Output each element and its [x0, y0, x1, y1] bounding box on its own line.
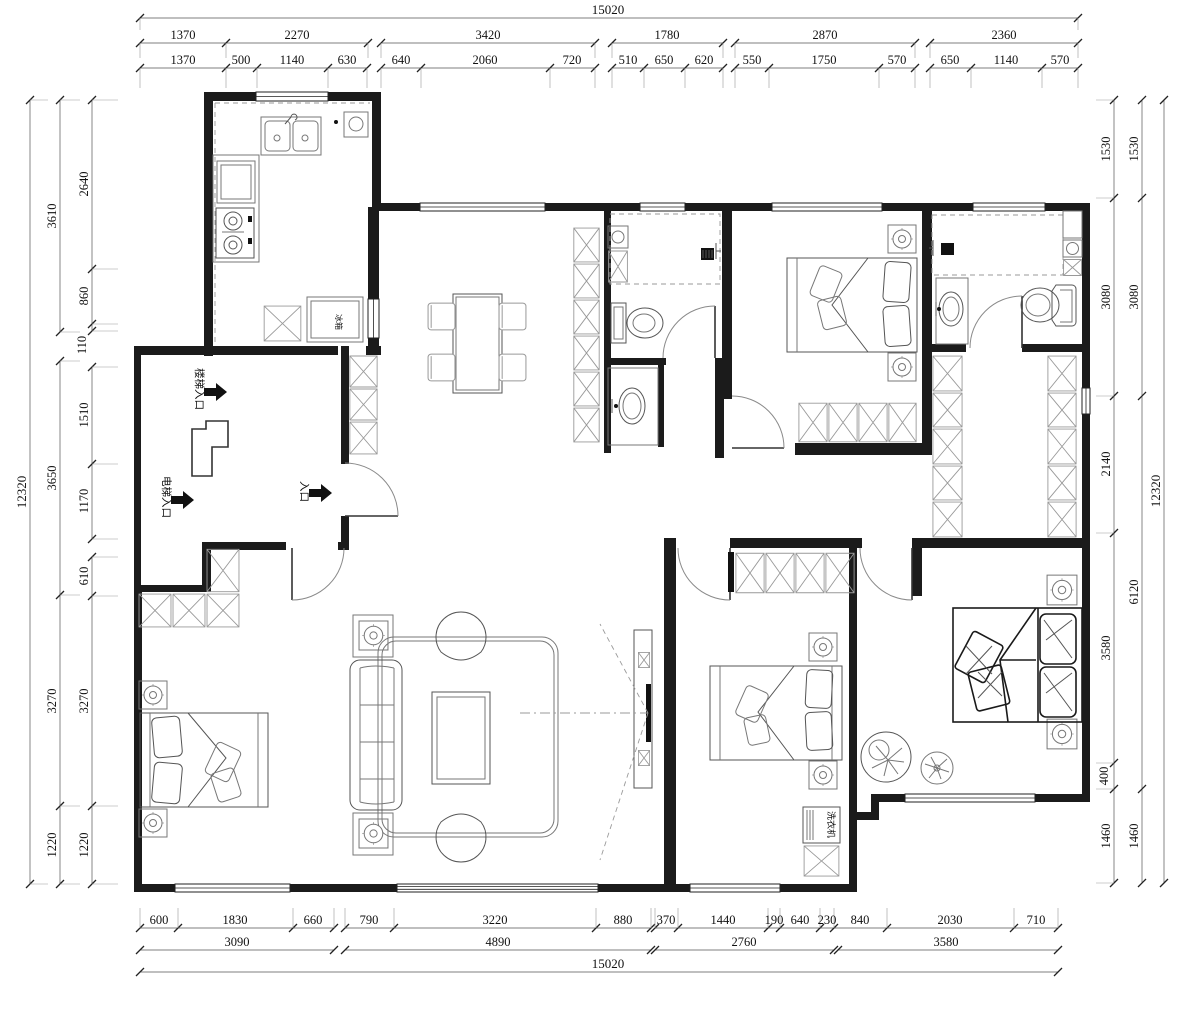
dim: 6120 [1127, 580, 1141, 605]
rug [378, 637, 558, 837]
window [420, 203, 545, 211]
dining-chair [428, 354, 455, 381]
dim-top-total: 15020 [592, 2, 625, 17]
dim: 570 [888, 53, 907, 67]
bed-bold [953, 608, 1082, 722]
tv-view-lines [600, 624, 648, 860]
window [397, 884, 598, 892]
nightstand-lamp [888, 353, 916, 381]
washing-machine: 洗衣机 [803, 807, 840, 843]
dim: 840 [851, 913, 870, 927]
bedroom-middle: 洗衣机 [710, 552, 854, 876]
plant-large [861, 732, 911, 782]
dim: 3080 [1099, 285, 1113, 310]
shower-head-icon [701, 243, 721, 260]
window [640, 203, 685, 211]
dim: 1170 [77, 489, 91, 514]
toilet [1021, 285, 1076, 326]
dim: 2640 [77, 172, 91, 197]
floor-plan-drawing: 15020 1370 2270 3420 1780 2870 2360 1370… [0, 0, 1200, 1014]
dim: 2030 [938, 913, 963, 927]
dim: 1220 [45, 833, 59, 858]
tv-cabinet [634, 630, 652, 788]
dim: 3270 [45, 689, 59, 714]
dim: 570 [1051, 53, 1070, 67]
dim: 650 [941, 53, 960, 67]
bed [787, 258, 917, 352]
dim: 610 [77, 567, 91, 586]
floor-plan-sheet: 15020 1370 2270 3420 1780 2870 2360 1370… [0, 0, 1200, 1014]
sofa [350, 660, 402, 810]
stove [216, 208, 254, 258]
dining-chair [499, 354, 526, 381]
dim: 650 [655, 53, 674, 67]
dim: 1140 [280, 53, 305, 67]
bedroom-top-door [732, 396, 784, 448]
cabinet-x [609, 251, 628, 282]
dim: 860 [77, 287, 91, 306]
dining-area [350, 228, 599, 454]
walls [134, 92, 1090, 892]
dim: 720 [563, 53, 582, 67]
washbasin-niche [608, 368, 658, 445]
nightstand-lamp [809, 761, 837, 789]
dim: 1530 [1127, 137, 1141, 162]
table-lamp [359, 621, 388, 650]
washing-machine-label: 洗衣机 [825, 811, 837, 838]
dim: 1460 [1099, 824, 1113, 849]
refrigerator: 冰箱 [307, 297, 363, 342]
dim: 790 [360, 913, 379, 927]
bed [710, 666, 842, 760]
window [368, 299, 379, 338]
window [256, 92, 328, 101]
dim: 3650 [45, 466, 59, 491]
dim: 3270 [77, 689, 91, 714]
dim: 1460 [1127, 824, 1141, 849]
entry-cabinet [350, 356, 377, 454]
dim: 620 [695, 53, 714, 67]
toilet [611, 303, 663, 343]
dining-chair [499, 303, 526, 330]
dim-bottom-total: 15020 [592, 956, 625, 971]
nightstand-lamp [888, 225, 916, 253]
dim: 3580 [934, 935, 959, 949]
dim: 1440 [711, 913, 736, 927]
bed [140, 713, 268, 807]
elevator-arrow-icon [171, 491, 194, 509]
bathroom2-door [970, 296, 1022, 348]
dim: 660 [304, 913, 323, 927]
bedroom-middle-door [678, 548, 730, 600]
window [772, 203, 882, 211]
dim: 370 [657, 913, 676, 927]
washbasin [936, 278, 968, 344]
entry-door [345, 463, 398, 516]
dim: 2360 [992, 28, 1017, 42]
dim: 640 [791, 913, 810, 927]
armchair [436, 814, 486, 862]
dim: 3420 [476, 28, 501, 42]
hall-cabinet-tall [574, 228, 599, 442]
nightstand-lamp [1047, 719, 1077, 749]
dim: 400 [1097, 767, 1111, 786]
dim: 1220 [77, 833, 91, 858]
dim: 1530 [1099, 137, 1113, 162]
dim: 3220 [483, 913, 508, 927]
wardrobe-east [1048, 356, 1076, 537]
window [973, 203, 1045, 211]
kitchen-cabinet [264, 306, 301, 341]
dining-chair [428, 303, 455, 330]
dim: 1140 [994, 53, 1019, 67]
dim: 3090 [225, 935, 250, 949]
kitchen: 冰箱 [213, 103, 370, 344]
dim: 190 [765, 913, 784, 927]
stair-arrow-icon [204, 383, 227, 401]
dim: 1370 [171, 53, 196, 67]
bathroom-2 [929, 211, 1082, 344]
armchair [436, 612, 486, 660]
bedroom-right [861, 575, 1082, 784]
window [690, 884, 780, 892]
wardrobe-west [933, 356, 962, 537]
entrance-arrow-icon [309, 484, 332, 502]
nightstand-lamp [139, 809, 167, 837]
walkin-closet [933, 356, 1076, 537]
door-jamb [728, 552, 734, 592]
bedroom-top [787, 225, 917, 442]
cabinet-x [1064, 260, 1082, 276]
nightstand-lamp [139, 681, 167, 709]
stair-entrance-label: 楼梯入口 [193, 368, 206, 410]
dim: 600 [150, 913, 169, 927]
bedroom-left-door [292, 548, 344, 600]
cabinet-x [804, 846, 839, 876]
table-lamp [359, 819, 388, 848]
dim: 2270 [285, 28, 310, 42]
dim: 550 [743, 53, 762, 67]
kitchen-sink [261, 114, 321, 155]
dim: 2060 [473, 53, 498, 67]
dim: 1750 [812, 53, 837, 67]
dim: 4890 [486, 935, 511, 949]
dim-right-total: 12320 [1148, 475, 1163, 508]
window [1082, 388, 1090, 414]
living-room [350, 612, 652, 862]
wardrobe [799, 403, 916, 442]
nightstand-lamp [1047, 575, 1077, 605]
dim: 1830 [223, 913, 248, 927]
dim: 880 [614, 913, 633, 927]
dim: 3080 [1127, 285, 1141, 310]
nightstand-lamp [809, 633, 837, 661]
dim: 2760 [732, 935, 757, 949]
water-heater [334, 112, 368, 137]
shower-head-icon [929, 240, 954, 256]
dim: 510 [619, 53, 638, 67]
entry-lobby: 楼梯入口 电梯入口 入口 [160, 368, 332, 518]
dim: 500 [232, 53, 251, 67]
dim: 3610 [45, 204, 59, 229]
dim: 640 [392, 53, 411, 67]
window [175, 884, 290, 892]
entrance-label: 入口 [298, 481, 310, 502]
bedroom-right-door [860, 548, 912, 600]
dim: 630 [338, 53, 357, 67]
dim: 3580 [1099, 636, 1113, 661]
dim: 1510 [77, 403, 91, 428]
cabinet [1063, 211, 1082, 257]
dim: 110 [75, 336, 89, 354]
dim-left-total: 12320 [14, 476, 29, 509]
stair-core [192, 421, 228, 476]
coffee-table [432, 692, 490, 784]
dim: 1780 [655, 28, 680, 42]
wardrobe [736, 553, 854, 592]
dim: 230 [818, 913, 837, 927]
elevator-entrance-label: 电梯入口 [160, 476, 173, 518]
bathroom-1 [608, 214, 721, 445]
window [905, 794, 1035, 802]
dim: 1370 [171, 28, 196, 42]
oven [217, 161, 255, 203]
dim: 2140 [1099, 452, 1113, 477]
bedroom-left [139, 549, 268, 837]
bathroom1-door [663, 306, 715, 358]
dim: 2870 [813, 28, 838, 42]
fridge-label: 冰箱 [334, 314, 344, 330]
dim: 710 [1027, 913, 1046, 927]
plant-small [921, 752, 953, 784]
dining-table [453, 294, 502, 393]
dimension-annotations: 15020 1370 2270 3420 1780 2870 2360 1370… [14, 2, 1168, 976]
